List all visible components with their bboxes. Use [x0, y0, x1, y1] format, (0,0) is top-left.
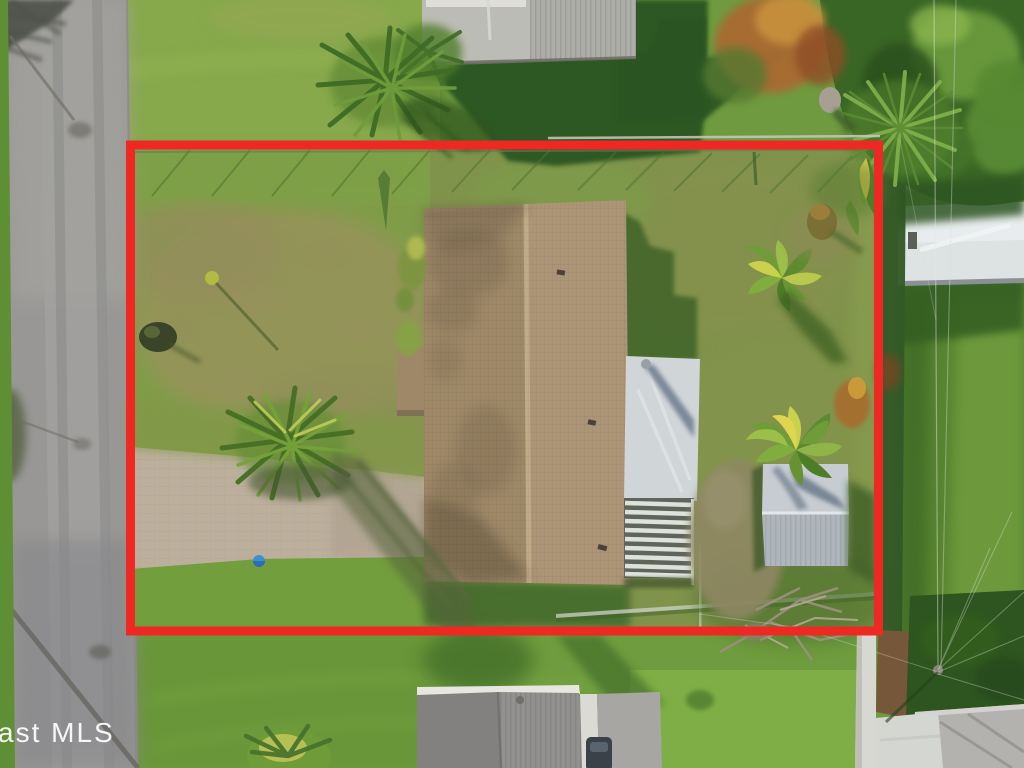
svg-text:ast MLS: ast MLS — [0, 717, 115, 748]
